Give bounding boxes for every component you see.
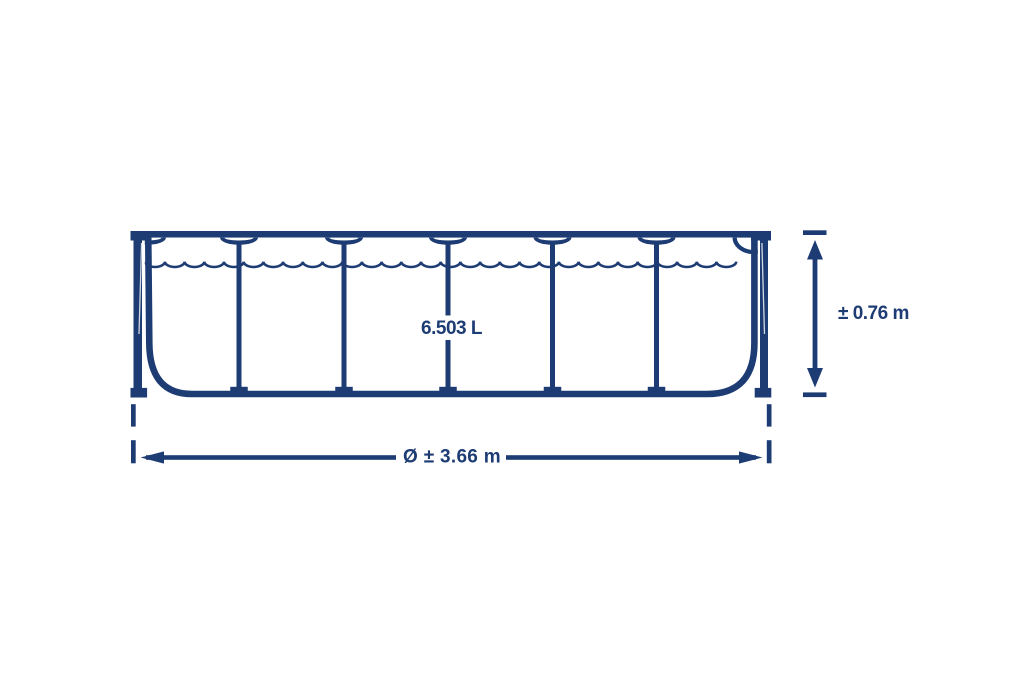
svg-text:Ø ± 3.66 m: Ø ± 3.66 m — [403, 447, 501, 468]
svg-text:6.503 L: 6.503 L — [421, 318, 483, 339]
svg-text:± 0.76 m: ± 0.76 m — [838, 303, 909, 324]
